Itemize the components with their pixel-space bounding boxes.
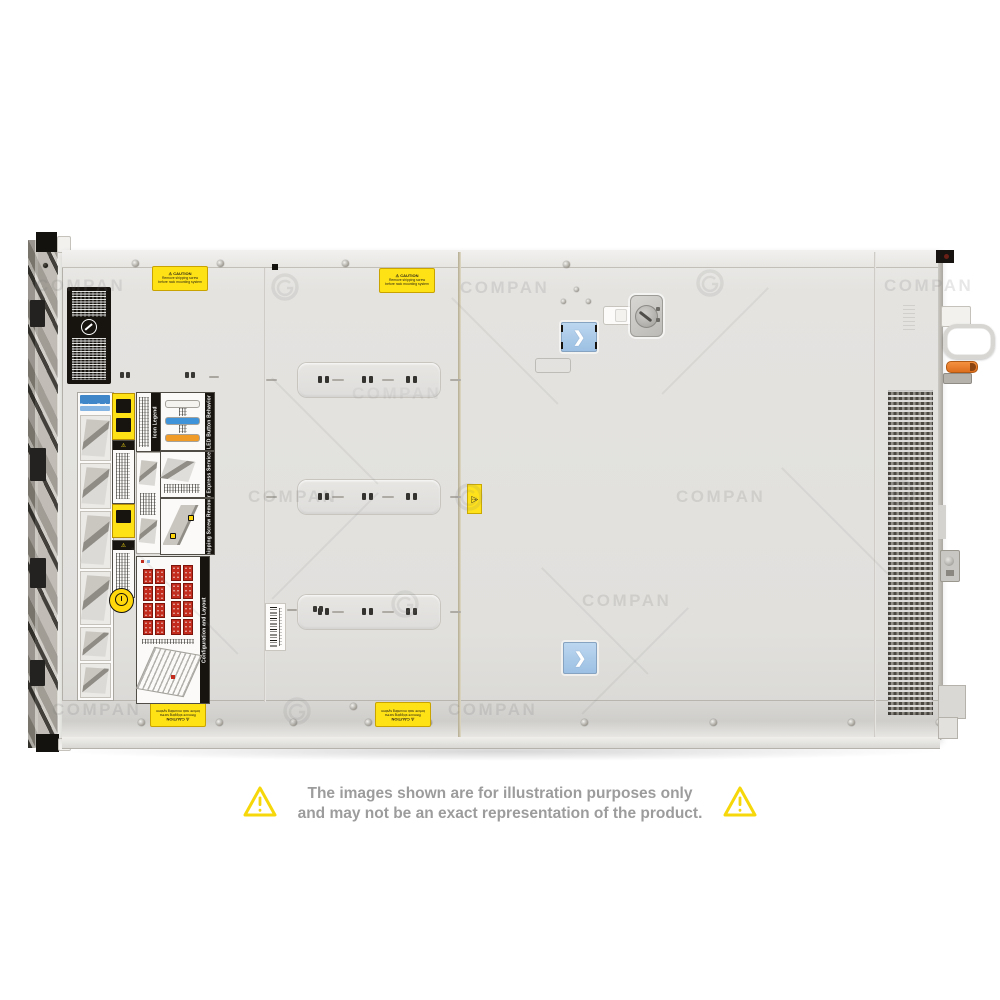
corner-mark	[595, 342, 597, 349]
rear-vent-grid	[888, 390, 933, 715]
clock-icon	[115, 593, 128, 606]
vent-hole-pair	[406, 376, 417, 383]
caution-sticker: ⚠ CAUTION Remove shipping screw before r…	[379, 268, 435, 293]
certification-mark-icon	[81, 319, 97, 335]
pointer-mark	[403, 268, 411, 269]
lock-icon	[656, 307, 660, 311]
led-button-behavior-label: LED Button Behavior	[160, 392, 215, 451]
instruction-diagram	[139, 460, 158, 486]
warning-label: ⚠	[112, 440, 135, 504]
vent-hole-pair	[362, 493, 373, 500]
corner-mark	[595, 325, 597, 332]
caution-sticker: ⚠ CAUTION Remove shipping screw before r…	[150, 702, 206, 727]
label-fine-print	[72, 338, 106, 380]
pointer-mark	[174, 726, 182, 727]
recessed-slot	[298, 595, 440, 629]
label-fine-print	[179, 425, 187, 433]
slider-thumb	[615, 309, 627, 322]
engraved-marking	[903, 305, 915, 333]
warning-triangle-sticker: ⚠	[467, 484, 482, 514]
pinch-warning-sticker	[112, 393, 135, 440]
instruction-diagram	[80, 627, 111, 661]
vent-hole-pair	[362, 608, 373, 615]
label-fine-print	[140, 493, 156, 515]
screw	[138, 719, 145, 726]
barcode-text	[279, 608, 282, 646]
pointer-mark	[399, 726, 407, 727]
label-title: Icon Legend	[151, 393, 160, 451]
product-photo-page: ❯ ❯ ⚠ ⚠ CAUTION Remove shipping	[0, 0, 1000, 1000]
warning-icon: ⚠	[470, 495, 479, 503]
screw	[586, 299, 591, 304]
cover-release-latch-2: ❯	[563, 642, 597, 674]
legend-swatch-blue	[147, 560, 150, 563]
connector-pin	[946, 570, 954, 576]
barcode-icon	[270, 607, 277, 647]
screw	[710, 719, 717, 726]
disclaimer-line-1: The images shown are for illustration pu…	[298, 784, 703, 804]
chassis-iso-diagram	[136, 647, 203, 697]
bay-marker	[171, 675, 175, 679]
caution-sticker-text: ⚠ CAUTION Remove shipping screw before r…	[376, 708, 430, 720]
label-fine-print	[139, 397, 149, 447]
panel-recess	[535, 358, 571, 373]
vent-hole-pair	[120, 372, 130, 378]
recessed-slot	[298, 480, 440, 514]
instruction-diagram	[80, 571, 111, 625]
system-tasks-label: System Tasks	[77, 392, 114, 701]
rail-diagram	[163, 505, 203, 545]
screw	[43, 263, 48, 268]
screw	[342, 260, 349, 267]
label-title: Configuration and Layout	[200, 557, 209, 703]
drive-bay-map	[171, 565, 193, 635]
etched-dash	[332, 496, 344, 498]
label-fine-print	[179, 408, 187, 416]
instruction-diagram	[160, 458, 195, 482]
caution-sticker: ⚠ CAUTION Remove shipping screw before r…	[152, 266, 208, 291]
vent-hole-pair	[406, 608, 417, 615]
keylock-cylinder	[635, 305, 658, 328]
screw	[574, 287, 579, 292]
unlock-icon	[656, 318, 660, 322]
recessed-slot	[298, 363, 440, 397]
etched-dash	[332, 379, 344, 381]
screw	[216, 719, 223, 726]
drive-latch-block	[30, 660, 45, 686]
etched-dash	[382, 379, 394, 381]
vent-hole-pair	[313, 606, 323, 612]
warning-triangle-icon	[242, 785, 278, 823]
keylock	[630, 295, 663, 337]
screw	[365, 719, 372, 726]
rear-corner-block	[936, 250, 954, 263]
led-bar-amber	[165, 434, 200, 442]
disclaimer-line-2: and may not be an exact representation o…	[298, 804, 703, 824]
screw-marker	[188, 515, 194, 521]
etched-dash	[450, 379, 461, 381]
led-bar-blue	[165, 417, 200, 425]
wait-time-sticker	[109, 588, 134, 613]
square-hole	[272, 264, 278, 270]
pinch-hazard-icon	[116, 510, 131, 523]
chevron-right-icon: ❯	[573, 328, 586, 346]
rear-tab	[938, 505, 946, 539]
service-tag-label: Rear Express Service Tag	[160, 451, 215, 498]
warning-triangle-icon	[722, 785, 758, 823]
etched-dash	[450, 611, 461, 613]
drive-latch-block	[30, 448, 46, 481]
label-title: Rear Express Service Tag	[205, 452, 214, 497]
rear-bracket	[943, 373, 972, 384]
etched-dash	[266, 496, 277, 498]
psu-release-handle	[946, 361, 978, 373]
etched-dash	[450, 496, 461, 498]
corner-mark	[561, 325, 563, 332]
cover-seam-right	[874, 252, 876, 737]
barcode-label	[265, 603, 286, 651]
cover-release-latch: ❯	[561, 322, 597, 352]
instruction-label	[136, 452, 161, 554]
screw	[563, 261, 570, 268]
etched-dash	[332, 611, 344, 613]
screw-marker	[170, 533, 176, 539]
disclaimer-text: The images shown are for illustration pu…	[298, 784, 703, 824]
pinch-warning-sticker	[112, 504, 135, 538]
vent-hole-pair	[406, 493, 417, 500]
label-title-bar: System Tasks	[80, 395, 110, 404]
screw	[561, 299, 566, 304]
bottom-lip	[62, 737, 940, 749]
thumbscrew	[944, 556, 954, 566]
drive-latch-block	[30, 558, 46, 588]
legend-swatch-red	[141, 560, 144, 563]
instruction-diagram	[139, 518, 158, 544]
shipping-screw-label: Shipping Screw Removal	[160, 498, 215, 555]
regulatory-label	[67, 287, 111, 384]
vent-hole-pair	[185, 372, 195, 378]
caution-sticker-text: ⚠ CAUTION Remove shipping screw before r…	[153, 272, 207, 284]
label-fine-print	[72, 291, 106, 317]
pointer-mark	[176, 266, 184, 267]
screw	[848, 719, 855, 726]
rear-step	[938, 685, 966, 719]
etched-dash	[382, 496, 394, 498]
etched-dash	[382, 611, 394, 613]
psu-ring-handle	[943, 324, 995, 359]
drive-latch-block	[30, 300, 45, 327]
chevron-right-icon: ❯	[574, 649, 587, 667]
server-drop-shadow	[55, 747, 945, 761]
corner-mark	[561, 342, 563, 349]
rack-ear-bottom	[36, 734, 59, 752]
label-fine-print	[116, 553, 130, 593]
rear-connector	[940, 550, 960, 582]
warning-label-title: ⚠	[113, 441, 134, 450]
rear-step	[938, 717, 958, 739]
drive-bay-map	[143, 569, 165, 635]
vent-hole-pair	[362, 376, 373, 383]
configuration-layout-label: Configuration and Layout	[136, 556, 210, 704]
handle-tip	[970, 363, 976, 371]
label-fine-print	[164, 484, 200, 493]
etched-dash	[266, 379, 277, 381]
caution-sticker-text: ⚠ CAUTION Remove shipping screw before r…	[380, 274, 434, 286]
caution-sticker-text: ⚠ CAUTION Remove shipping screw before r…	[151, 708, 205, 720]
icon-legend-label: Icon Legend	[136, 392, 161, 452]
screw	[217, 260, 224, 267]
screw	[350, 703, 357, 710]
caution-sticker: ⚠ CAUTION Remove shipping screw before r…	[375, 702, 431, 727]
label-title: Shipping Screw Removal	[205, 499, 214, 554]
label-fine-print	[116, 453, 130, 499]
instruction-diagram	[80, 463, 111, 509]
label-subtitle-bar	[80, 406, 110, 411]
caution-label-title: ⚠	[113, 541, 134, 550]
vent-hole-pair	[318, 376, 329, 383]
label-title: LED Button Behavior	[205, 393, 214, 450]
etched-dash	[209, 376, 219, 378]
lock-slider	[603, 306, 632, 325]
screw	[581, 719, 588, 726]
screw	[132, 260, 139, 267]
label-fine-print	[142, 639, 194, 644]
red-screw	[944, 254, 949, 259]
rack-ear-top	[36, 232, 57, 252]
instruction-diagram	[80, 415, 111, 461]
key-slot	[639, 310, 653, 322]
disclaimer: The images shown are for illustration pu…	[0, 784, 1000, 824]
led-bar-off	[165, 400, 200, 408]
cover-seam-middle	[458, 252, 461, 737]
etched-dash	[287, 609, 297, 611]
instruction-diagram	[80, 663, 111, 698]
screw	[290, 719, 297, 726]
pinch-hazard-icon	[116, 399, 131, 413]
vent-hole-pair	[318, 493, 329, 500]
pinch-hazard-icon	[116, 418, 131, 432]
instruction-diagram	[80, 511, 111, 569]
